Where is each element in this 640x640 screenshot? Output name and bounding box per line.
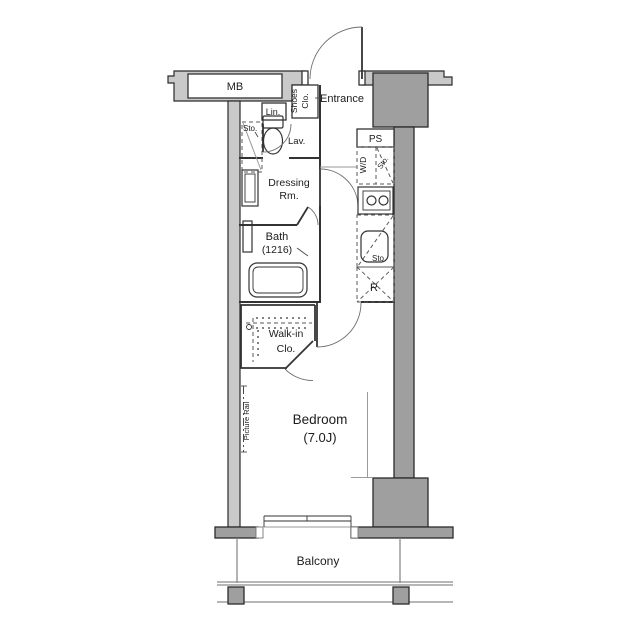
label-dressing-room-line2: Rm.: [279, 190, 298, 202]
floor-plan-drawing: MB Entrance Shoes Clo. Lin. Sto. Lav. Dr…: [0, 0, 640, 640]
label-pipe-space: PS: [369, 134, 383, 145]
label-linen: Lin.: [266, 107, 281, 117]
window-jamb-right: [351, 527, 358, 538]
label-bedroom-line2: (7.0J): [303, 430, 336, 445]
label-storage-kitchen: Sto.: [372, 254, 386, 263]
toilet-icon: [263, 116, 283, 154]
window-jamb-left: [256, 527, 263, 538]
label-storage-lavatory: Sto.: [243, 124, 257, 133]
label-shoes-closet-line2: Clo.: [300, 93, 310, 108]
entrance-door: [302, 27, 365, 85]
south-wall-right: [351, 527, 453, 538]
wic-door-arc-icon: [285, 369, 313, 381]
label-refrigerator: R: [370, 282, 378, 294]
label-washer-dryer: W/D: [358, 157, 368, 174]
label-bedroom-line1: Bedroom: [293, 412, 348, 427]
floor-plan-page: MB Entrance Shoes Clo. Lin. Sto. Lav. Dr…: [0, 0, 640, 640]
label-bath-line1: Bath: [266, 231, 289, 243]
label-bath-line2: (1216): [262, 244, 292, 256]
label-entrance: Entrance: [320, 93, 364, 105]
balcony-window-icon: [256, 516, 358, 538]
label-balcony: Balcony: [297, 554, 340, 568]
balcony-structure: [217, 538, 453, 604]
bath-door: [297, 207, 318, 225]
east-wall: [394, 127, 414, 478]
bath-door-arc-icon: [308, 207, 318, 225]
hanger-pipe-end-icon: [247, 325, 252, 330]
label-lavatory: Lav.: [288, 136, 305, 147]
vanity-icon: [242, 170, 258, 206]
northeast-column: [373, 73, 428, 127]
bedroom-door: [317, 303, 361, 347]
entrance-door-arc-icon: [310, 27, 362, 79]
bath-label-leader: [297, 248, 308, 256]
label-shoes-closet-line1: Shoes: [289, 89, 299, 113]
label-picture-rail: Picture Rail: [242, 402, 251, 441]
label-storage-washer: Sto.: [375, 155, 390, 171]
label-meter-box: MB: [227, 81, 244, 93]
room-labels: MB Entrance Shoes Clo. Lin. Sto. Lav. Dr…: [227, 81, 391, 568]
railing-post-right: [393, 587, 409, 604]
label-dressing-room-line1: Dressing: [268, 177, 310, 189]
label-walk-in-closet-line2: Clo.: [277, 343, 296, 355]
dressing-door-arc-icon: [320, 169, 358, 207]
west-wall: [228, 101, 240, 527]
door-jamb-left: [302, 71, 308, 85]
bedroom-door-arc-icon: [317, 303, 361, 347]
southeast-column: [373, 478, 428, 527]
stove-icon: [358, 187, 393, 214]
south-wall-left: [215, 527, 258, 538]
bathtub-icon: [249, 263, 307, 297]
column-finish-lines: [351, 392, 373, 478]
railing-post-left: [228, 587, 244, 604]
bath-door-leaf: [297, 207, 308, 225]
dressing-room-door: [320, 169, 358, 207]
label-walk-in-closet-line1: Walk-in: [269, 328, 304, 340]
